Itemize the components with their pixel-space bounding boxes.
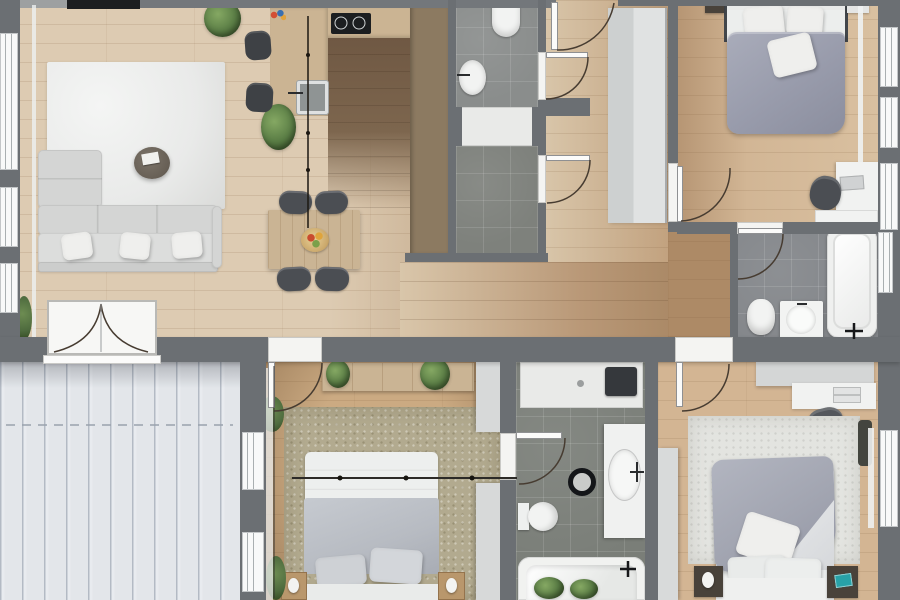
french-door-arc-left bbox=[54, 304, 101, 352]
bathroom-right-door-arc bbox=[738, 234, 783, 279]
vanity-bottom-faucet bbox=[630, 462, 644, 482]
door-swing-overlay bbox=[0, 0, 900, 600]
cooktop-burners bbox=[335, 17, 365, 29]
shower-room-arc-upper bbox=[546, 57, 588, 99]
bathtub-bottom-faucet bbox=[620, 561, 636, 577]
front-door-arc bbox=[557, 3, 614, 50]
bathroom-bottom-door-arc bbox=[519, 438, 565, 484]
bedroom1-door-arc bbox=[681, 168, 730, 221]
shower-room-arc-lower bbox=[547, 160, 590, 203]
bedroom2-door-arc bbox=[274, 363, 322, 411]
bathtub-right-faucet bbox=[845, 323, 863, 339]
bedroom3-door-arc bbox=[682, 364, 729, 411]
french-door-arc-right bbox=[101, 304, 148, 352]
floor-plan bbox=[0, 0, 900, 600]
